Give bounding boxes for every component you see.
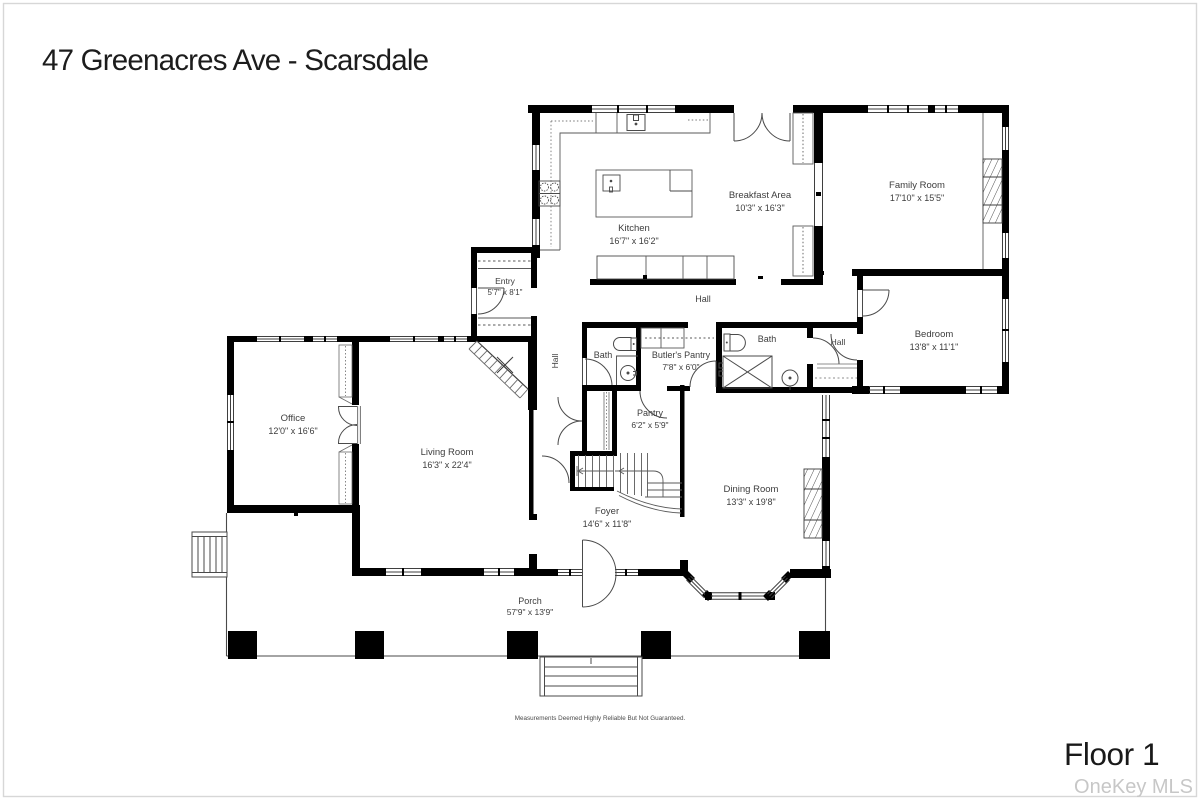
svg-text:12'0" x 16'6": 12'0" x 16'6" (268, 426, 317, 436)
svg-text:Bedroom: Bedroom (915, 329, 954, 340)
svg-text:10'3" x 16'3": 10'3" x 16'3" (735, 203, 784, 213)
svg-text:Dining Room: Dining Room (724, 484, 779, 495)
svg-text:Pantry: Pantry (637, 408, 664, 418)
svg-text:14'6" x 11'8": 14'6" x 11'8" (583, 519, 632, 529)
svg-text:OneKey MLS: OneKey MLS (1074, 776, 1193, 798)
svg-text:47 Greenacres Ave - Scarsdale: 47 Greenacres Ave - Scarsdale (42, 44, 429, 77)
svg-text:Breakfast Area: Breakfast Area (729, 190, 792, 201)
svg-text:Office: Office (281, 413, 306, 424)
svg-text:Hall: Hall (831, 337, 846, 347)
svg-text:7'8" x 6'0": 7'8" x 6'0" (662, 362, 699, 372)
svg-text:16'3" x 22'4": 16'3" x 22'4" (422, 460, 471, 470)
svg-text:Living Room: Living Room (421, 447, 474, 458)
svg-text:Bath: Bath (758, 334, 777, 344)
svg-text:Porch: Porch (518, 596, 542, 606)
svg-text:Hall: Hall (550, 354, 560, 369)
svg-text:Entry: Entry (495, 276, 516, 286)
svg-text:Family Room: Family Room (889, 180, 945, 191)
svg-text:Measurements Deemed Highly Rel: Measurements Deemed Highly Reliable But … (515, 715, 686, 722)
svg-text:5'7" x 8'1": 5'7" x 8'1" (488, 288, 523, 297)
svg-text:Floor 1: Floor 1 (1064, 736, 1159, 772)
svg-text:Bath: Bath (594, 350, 613, 360)
svg-text:13'3" x 19'8": 13'3" x 19'8" (726, 497, 775, 507)
svg-text:57'9" x 13'9": 57'9" x 13'9" (507, 607, 554, 617)
svg-text:Foyer: Foyer (595, 506, 619, 517)
svg-text:Hall: Hall (695, 294, 711, 304)
svg-text:16'7" x 16'2": 16'7" x 16'2" (609, 236, 658, 246)
svg-text:13'8" x 11'1": 13'8" x 11'1" (910, 342, 959, 352)
svg-text:6'2" x 5'9": 6'2" x 5'9" (631, 420, 668, 430)
svg-text:Butler's Pantry: Butler's Pantry (652, 350, 711, 360)
svg-text:Kitchen: Kitchen (618, 223, 650, 234)
svg-text:17'10" x 15'5": 17'10" x 15'5" (890, 193, 944, 203)
